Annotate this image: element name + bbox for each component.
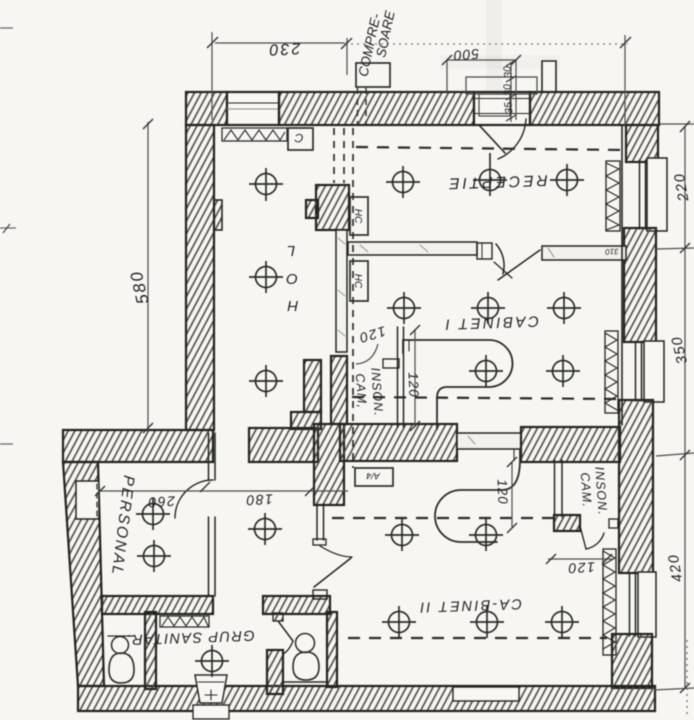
svg-text:120: 120 <box>567 559 596 576</box>
svg-text:CABINET I: CABINET I <box>443 312 539 332</box>
svg-text:HC: HC <box>352 274 363 289</box>
svg-text:230: 230 <box>267 39 302 58</box>
svg-text:H: H <box>287 297 298 314</box>
svg-text:30: 30 <box>501 65 514 78</box>
svg-text:L: L <box>287 242 295 259</box>
svg-text:RECEPTIE: RECEPTIE <box>446 171 548 192</box>
svg-text:310: 310 <box>605 247 619 256</box>
svg-text:A/4: A/4 <box>366 471 381 482</box>
svg-text:260: 260 <box>147 493 177 510</box>
svg-text:120: 120 <box>406 372 422 398</box>
svg-text:O: O <box>286 270 298 287</box>
svg-text:C: C <box>294 131 304 146</box>
svg-text:CAM,: CAM, <box>353 373 369 409</box>
svg-text:180: 180 <box>245 491 274 508</box>
svg-text:HC: HC <box>352 209 363 224</box>
svg-text:500: 500 <box>452 46 480 64</box>
svg-text:CAM.: CAM. <box>578 472 594 508</box>
svg-text:120: 120 <box>495 479 511 505</box>
svg-text:35: 35 <box>502 101 515 114</box>
svg-text:30: 30 <box>501 83 514 96</box>
